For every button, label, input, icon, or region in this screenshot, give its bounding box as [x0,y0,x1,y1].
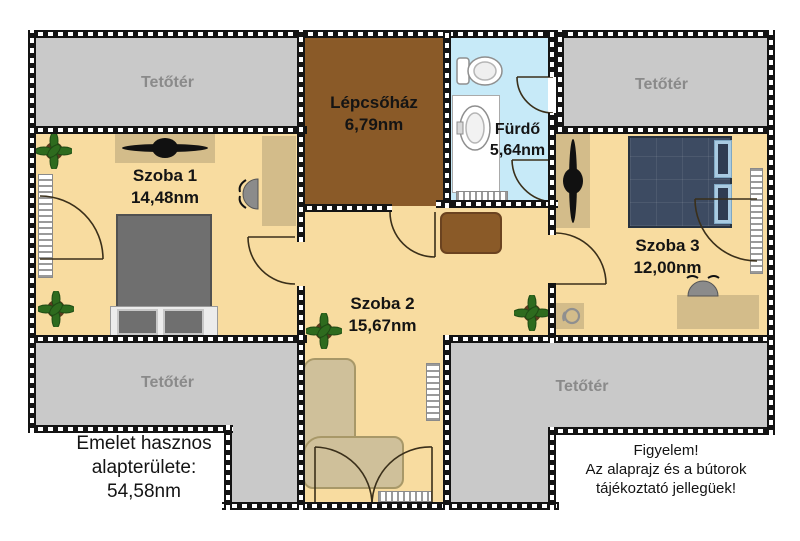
room3-area: 12,00nm [560,257,775,279]
plant-icon [36,133,72,169]
disclaimer-line3: tájékoztató jellegüek! [596,480,736,497]
bathroom-area: 5,64nm [470,140,565,161]
toilet-icon [456,50,504,92]
room2-area: 15,67nm [300,315,465,337]
staircase-name: Lépcsőház [330,93,418,112]
room1-name: Szoba 1 [133,166,197,185]
room2-label: Szoba 2 15,67nm [300,293,465,337]
summary-line2: alapterülete: [92,457,197,478]
sofa-corner [303,436,404,489]
wall [548,427,775,435]
wall [297,204,392,212]
wall [548,30,556,77]
wall [443,335,451,510]
pillow [714,184,732,224]
bathroom-label: Fürdő 5,64nm [470,119,565,161]
room3-name: Szoba 3 [635,236,699,255]
room2-name: Szoba 2 [350,294,414,313]
wall [222,502,559,510]
pillow [714,140,732,178]
disclaimer-line1: Figyelem! [633,442,698,459]
lamp-icon [560,305,582,327]
wall [297,30,305,242]
wall [548,283,556,343]
radiator [38,174,53,278]
attic-label-bottom-right: Tetőtér [447,378,717,396]
bathroom-name: Fürdő [495,121,540,138]
wall [548,126,775,134]
staircase-label: Lépcsőház 6,79nm [301,92,447,136]
summary-line1: Emelet hasznos [76,433,211,454]
summary-text: Emelet hasznos alapterülete: 54,58nm [33,432,255,504]
ceiling-fan-icon [118,135,212,161]
attic-label-top-left: Tetőtér [32,74,303,92]
wall [436,200,558,208]
disclaimer-line2: Az alaprajz és a bútorok [586,461,747,478]
radiator [426,363,440,421]
attic-label-top-right: Tetőtér [552,76,771,94]
room1-label: Szoba 1 14,48nm [60,165,270,209]
wall [28,335,307,343]
wall [28,126,307,134]
radiator [378,491,432,502]
disclaimer-text: Figyelem! Az alaprajz és a bútorok tájék… [552,441,780,498]
room1-area: 14,48nm [60,187,270,209]
room3-label: Szoba 3 12,00nm [560,235,775,279]
floorplan: Tetőtér Tetőtér Tetőtér Tetőtér Lépcsőhá… [0,0,800,541]
pillow [117,309,158,335]
wall [28,30,775,38]
cabinet [440,212,502,254]
attic-label-bottom-left: Tetőtér [32,374,303,392]
plant-icon [514,295,550,331]
summary-line3: 54,58nm [107,481,181,502]
attic-area-bottom-right-ext [447,339,554,506]
desk [677,295,759,329]
pillow [163,309,204,335]
staircase-area: 6,79nm [301,114,447,136]
wall [443,335,775,343]
plant-icon [38,291,74,327]
